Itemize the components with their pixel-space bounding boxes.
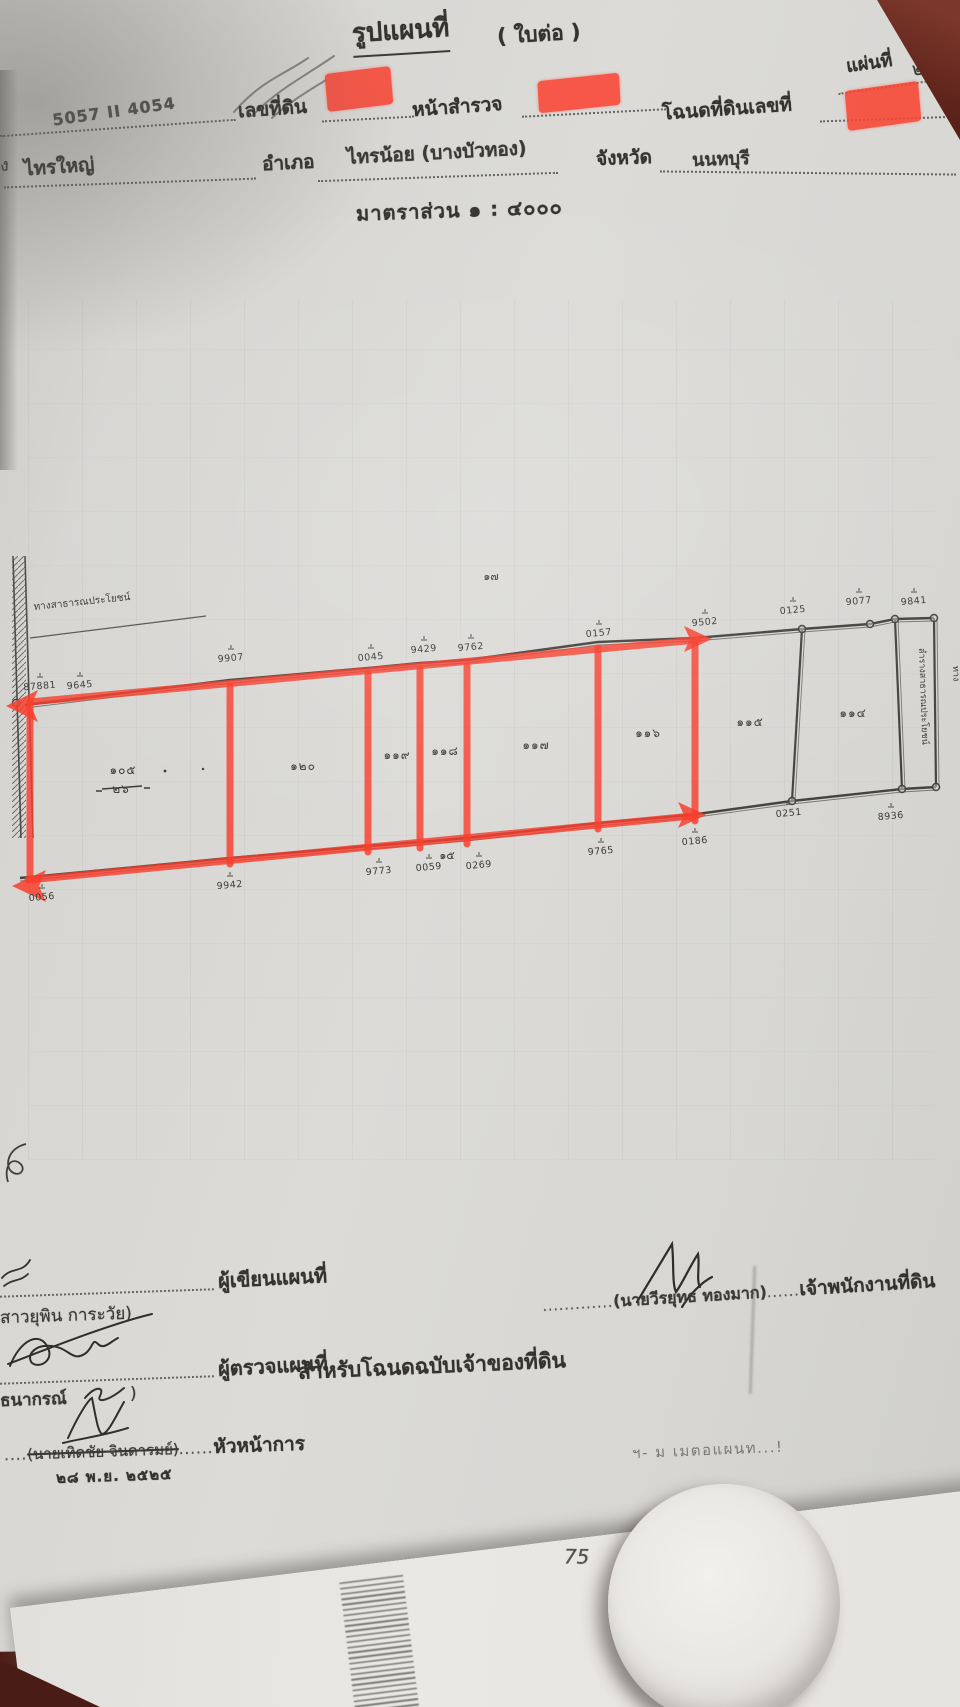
marker-bottom-5: 9765	[587, 845, 614, 858]
checker-signature	[0, 1308, 175, 1372]
right-boundary-label: ลำรางสาธารณประโยชน์	[916, 648, 931, 745]
officer-row: .............(นายวีรยุทธ ทองมาก)......เจ…	[541, 1266, 936, 1320]
sheet-number-label: แผ่นที่	[844, 45, 894, 80]
red-highlight-boundary	[28, 640, 697, 880]
writer-signature	[0, 1248, 40, 1293]
province-value: นนทบุรี	[692, 143, 751, 174]
parcel-number-0: ๑๐๕	[109, 763, 136, 777]
leader-line	[30, 616, 206, 638]
parcel-number-3: ๑๑๘	[431, 744, 459, 758]
marker-bottom-1: 9942	[216, 879, 243, 892]
deed-number-label: โฉนดที่ดินเลขที่	[661, 90, 793, 129]
marker-bottom-2: 9773	[365, 865, 392, 878]
head-label: หัวหน้าการ	[213, 1433, 305, 1458]
parcel-number-4: ๑๑๗	[522, 738, 549, 752]
ink-speck	[164, 770, 167, 773]
land-number-label: เลขที่ดิน	[237, 92, 308, 127]
ink-speck	[202, 768, 204, 770]
approval-date: ๒๘ พ.ย. ๒๕๒๕	[56, 1462, 173, 1490]
dense-printed-text-block	[339, 1575, 421, 1707]
handwritten-mark: 75	[564, 1544, 590, 1568]
parcel-number-5: ๑๑๖	[635, 726, 661, 740]
marker-top-8: 0125	[779, 604, 806, 617]
field-line	[0, 119, 236, 137]
ink-bleed-through-text: ฯ- ม เมตอแผนท...!	[632, 1435, 784, 1466]
marker-top-6: 0157	[585, 627, 612, 640]
marker-bottom-3: 0059	[415, 861, 442, 874]
marker-bottom-6: 0186	[681, 835, 708, 848]
photo-edge-shadow	[0, 70, 18, 470]
redaction-mark-survey-page	[537, 73, 620, 114]
marker-top-9: 9077	[845, 595, 872, 608]
white-cup-object	[608, 1484, 840, 1707]
marker-top-2: 9907	[217, 652, 244, 665]
cadastral-diagram: ทางสาธารณประโยชน์ 87881 9645 9907 0045 9…	[0, 520, 960, 920]
marker-top-0: 87881	[23, 680, 57, 694]
photographed-cadastral-document: { "page": { "title": "รูปแผนที่", "conti…	[0, 0, 960, 1707]
document-title: รูปแผนที่	[351, 7, 451, 58]
document-title-suffix: ( ใบต่อ )	[496, 15, 582, 53]
far-right-label: ทาง	[950, 666, 960, 682]
marker-bottom-7: 0251	[775, 807, 802, 820]
marker-bottom-4: 0269	[465, 859, 492, 872]
marker-top-3: 0045	[357, 651, 384, 664]
parcel-old-number: ๒๖	[112, 782, 130, 796]
field-line	[318, 172, 558, 182]
survey-page-label: หน้าสำรวจ	[411, 89, 503, 125]
marker-top-5: 9762	[457, 641, 484, 654]
marker-top-4: 9429	[410, 643, 437, 656]
redaction-mark-deed-number	[845, 81, 922, 131]
marker-top-10: 9841	[900, 595, 927, 608]
parcel-number-6: ๑๑๕	[736, 715, 763, 729]
map-writer-label: ผู้เขียนแผนที่	[217, 1259, 328, 1297]
head-name: (นายเทิดชัย จินดารมย์)	[27, 1440, 179, 1463]
province-label: จังหวัด	[595, 142, 652, 174]
parcel-number-1: ๑๒๐	[290, 759, 316, 773]
marker-bottom-0: 0056	[28, 891, 55, 904]
owner-copy-note: สำหรับโฉนดฉบับเจ้าของที่ดิน	[297, 1344, 566, 1389]
parcel-number-2: ๑๑๙	[383, 748, 410, 762]
marker-bottom-8: 8936	[877, 810, 904, 823]
district-value: ไทรน้อย (บางบัวทอง)	[346, 133, 527, 172]
marker-top-1: 9645	[66, 679, 93, 692]
north-adjacent-parcel: ๑๗	[483, 570, 498, 583]
left-boundary-label: ทางสาธารณประโยชน์	[33, 590, 131, 613]
redaction-mark-land-number	[325, 66, 394, 112]
district-label: อำเภอ	[261, 147, 315, 180]
parcel-number-7: ๑๑๔	[839, 706, 866, 720]
scale-text: มาตราส่วน ๑ : ๔๐๐๐	[356, 190, 564, 229]
officer-label: เจ้าพนักงานที่ดิน	[799, 1270, 936, 1300]
south-adjacent-parcel: ๑๕	[439, 849, 454, 862]
subdistrict-value: ไทรใหญ่	[23, 150, 95, 185]
marker-top-7: 9502	[691, 616, 718, 629]
officer-name: (นายวีรยุทธ ทองมาก)	[613, 1282, 768, 1310]
